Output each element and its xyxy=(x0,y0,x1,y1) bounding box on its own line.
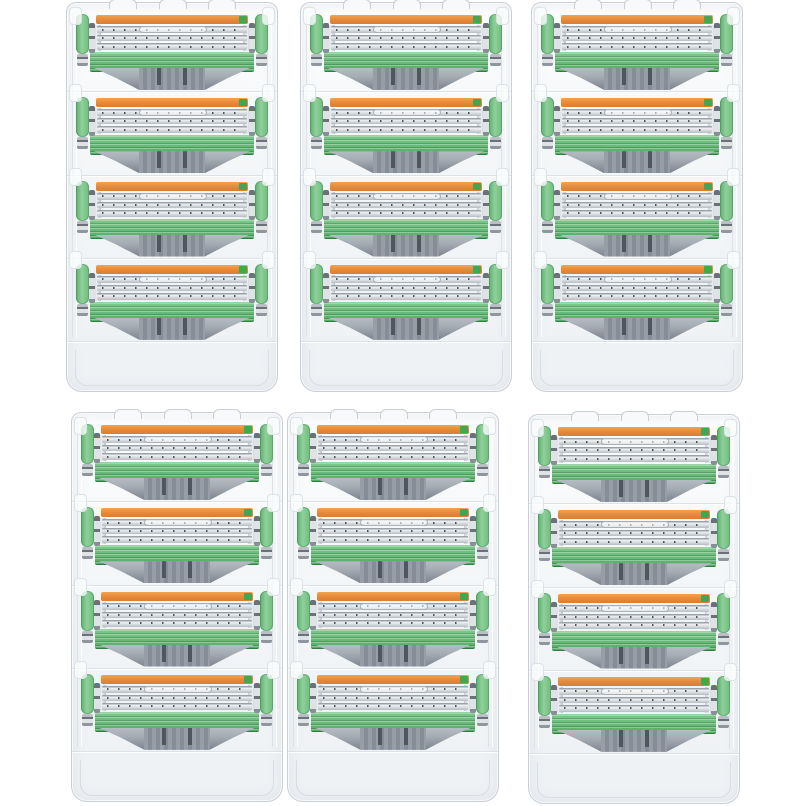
lubricating-strip xyxy=(317,508,469,517)
tray-wall-nub-right xyxy=(483,417,496,435)
lubricating-strip-end-cap xyxy=(701,678,709,685)
connector-slot xyxy=(188,728,192,745)
cartridge-back xyxy=(556,730,712,752)
cartridge-side-tab-left xyxy=(76,97,89,137)
connector-slot xyxy=(183,68,187,85)
cartridge-pivot-pin-left xyxy=(554,106,560,136)
tray-wall-nub-left xyxy=(534,84,547,102)
cartridge-back xyxy=(556,480,712,502)
blade-row xyxy=(97,118,247,124)
lubricating-strip xyxy=(561,15,713,24)
razor-pack-bottom-right xyxy=(528,414,740,804)
tray-wall-nub-left xyxy=(74,661,87,679)
lubricating-strip xyxy=(561,265,713,274)
connector-slot xyxy=(162,728,166,745)
cartridge-connector-ribs xyxy=(139,68,205,90)
lubricating-strip xyxy=(96,265,248,274)
lubricating-strip-end-cap xyxy=(473,183,481,190)
connector-slot xyxy=(404,561,408,578)
tray-wall-nub-left xyxy=(290,661,303,679)
blade-guard-dots xyxy=(567,212,707,214)
tray-empty-compartment xyxy=(67,341,277,391)
razor-cartridge xyxy=(72,586,282,668)
tray-top-bump xyxy=(393,0,421,9)
blade-row xyxy=(318,703,468,710)
tray-top-bump xyxy=(330,409,358,419)
blade-row xyxy=(102,612,252,618)
lubricating-strip xyxy=(558,510,710,519)
blade-guard-dots xyxy=(102,287,242,289)
blade-row xyxy=(562,202,712,208)
blade-comfort-guard xyxy=(601,521,669,528)
blade-comfort-guard xyxy=(144,686,212,693)
blade-row xyxy=(559,521,709,528)
lubricating-strip xyxy=(101,675,253,684)
blade-row xyxy=(318,612,468,618)
cartridge-back xyxy=(559,318,715,340)
tray-top-bump xyxy=(571,411,599,421)
cartridge-side-tab-right xyxy=(489,181,502,221)
tray-cartridge-slots xyxy=(532,9,742,341)
tray-wall-nub-left xyxy=(531,580,544,598)
lubricating-strip-end-cap xyxy=(473,16,481,23)
tray-cell xyxy=(288,501,498,584)
blade-guard-dots xyxy=(336,46,476,48)
lubricating-strip xyxy=(330,15,482,24)
lubricating-strip-end-cap xyxy=(701,428,709,435)
connector-slot xyxy=(157,68,161,85)
blade-guard-dots xyxy=(323,447,463,449)
connector-slot xyxy=(391,68,395,85)
tray-empty-compartment xyxy=(288,751,498,801)
tray-wall-nub-left xyxy=(69,84,82,102)
tray-top-bump xyxy=(109,0,137,9)
cartridge-side-tab-left xyxy=(538,593,551,633)
cartridge-back xyxy=(556,563,712,585)
blade-row xyxy=(97,202,247,208)
blade-row xyxy=(102,603,252,610)
blade-guard-dots xyxy=(102,37,242,39)
tray-wall-nub-left xyxy=(69,251,82,269)
cartridge-connector-ribs xyxy=(373,68,439,90)
lubricating-strip-end-cap xyxy=(460,676,468,683)
cartridge-side-tab-left xyxy=(81,674,94,714)
tray-wall-nub-right xyxy=(724,419,737,437)
tray-wall-nub-right xyxy=(267,494,280,512)
lubricating-strip-end-cap xyxy=(244,426,252,433)
cartridge-back xyxy=(328,235,484,257)
lubricating-strip xyxy=(96,182,248,191)
tray-top-bump xyxy=(670,411,698,421)
connector-slot xyxy=(417,318,421,335)
tray-cell xyxy=(301,258,511,341)
blade-guard-dots xyxy=(107,539,247,541)
razor-cartridge xyxy=(288,586,498,668)
blade-row xyxy=(559,697,709,703)
cartridge-back xyxy=(328,151,484,173)
blade-comfort-guard xyxy=(604,109,672,116)
blade-row xyxy=(102,453,252,460)
blade-row xyxy=(559,530,709,536)
connector-slot xyxy=(648,235,652,252)
lubricating-strip-end-cap xyxy=(704,266,712,273)
tray-wall-nub-left xyxy=(534,7,547,25)
connector-slot xyxy=(162,478,166,495)
cartridge-side-tab-left xyxy=(310,97,323,137)
tray-cartridge-slots xyxy=(72,419,282,751)
plastic-tray xyxy=(300,2,512,392)
blade-row xyxy=(102,686,252,693)
blade-comfort-guard xyxy=(373,26,441,33)
cartridge-connector-ribs xyxy=(604,318,670,340)
connector-slot xyxy=(378,478,382,495)
lubricating-strip xyxy=(101,592,253,601)
cartridge-side-tab-left xyxy=(538,509,551,549)
blade-row xyxy=(318,620,468,627)
connector-slot xyxy=(648,151,652,168)
lubricating-strip-end-cap xyxy=(239,99,247,106)
cartridge-side-tab-right xyxy=(489,97,502,137)
blade-guard-dots xyxy=(323,705,463,707)
blade-comfort-guard xyxy=(360,519,428,526)
tray-cell xyxy=(72,419,282,501)
blade-comfort-guard xyxy=(601,605,669,612)
blade-row xyxy=(331,43,481,50)
blade-row xyxy=(331,35,481,41)
cartridge-side-tab-right xyxy=(476,507,489,547)
lubricating-strip xyxy=(330,265,482,274)
blade-guard-dots xyxy=(564,449,704,451)
tray-floor-outline xyxy=(75,350,269,386)
blade-guard-dots xyxy=(567,204,707,206)
tray-top-bump xyxy=(213,409,241,419)
blade-row xyxy=(318,695,468,701)
tray-wall-nub-left xyxy=(303,168,316,186)
blade-guard-dots xyxy=(564,532,704,534)
blade-row xyxy=(562,109,712,116)
cartridge-pivot-pin-left xyxy=(551,435,557,465)
lubricating-strip xyxy=(317,675,469,684)
cartridge-connector-ribs xyxy=(601,480,667,502)
cartridge-pivot-pin-left xyxy=(94,433,100,463)
tray-wall-nub-right xyxy=(483,578,496,596)
tray-wall-nub-right xyxy=(727,7,740,25)
blade-row xyxy=(331,26,481,33)
cartridge-back xyxy=(315,728,471,750)
tray-top-bump xyxy=(621,411,649,421)
tray-cell xyxy=(301,175,511,258)
connector-slot xyxy=(645,563,649,580)
blade-row xyxy=(97,126,247,133)
cartridge-back xyxy=(315,478,471,500)
cartridge-connector-ribs xyxy=(144,561,210,583)
blade-row xyxy=(97,210,247,217)
blade-row xyxy=(331,202,481,208)
lubricating-strip-end-cap xyxy=(244,676,252,683)
razor-cartridge xyxy=(532,259,742,341)
razor-cartridge xyxy=(532,9,742,91)
lubricating-strip-end-cap xyxy=(460,509,468,516)
tray-wall-nub-left xyxy=(74,578,87,596)
blade-row xyxy=(559,538,709,545)
connector-slot xyxy=(648,68,652,85)
lubricating-strip xyxy=(96,98,248,107)
cartridge-pivot-pin-left xyxy=(94,600,100,630)
blade-guard-dots xyxy=(336,37,476,39)
cartridge-connector-ribs xyxy=(601,730,667,752)
connector-slot xyxy=(645,647,649,664)
connector-slot xyxy=(622,318,626,335)
razor-cartridge xyxy=(532,92,742,174)
plastic-tray xyxy=(287,412,499,802)
connector-slot xyxy=(188,645,192,662)
tray-wall-nub-right xyxy=(724,663,737,681)
tray-wall-nub-right xyxy=(727,168,740,186)
cartridge-back xyxy=(559,151,715,173)
cartridge-back xyxy=(315,561,471,583)
plastic-tray xyxy=(71,412,283,802)
blade-row xyxy=(318,436,468,443)
connector-slot xyxy=(162,561,166,578)
cartridge-back xyxy=(94,68,250,90)
cartridge-side-tab-left xyxy=(297,507,310,547)
blade-row xyxy=(318,528,468,534)
lubricating-strip xyxy=(561,98,713,107)
tray-wall-nub-right xyxy=(267,661,280,679)
cartridge-connector-ribs xyxy=(144,645,210,667)
blade-comfort-guard xyxy=(373,109,441,116)
connector-slot xyxy=(391,318,395,335)
blade-comfort-guard xyxy=(144,603,212,610)
blade-row xyxy=(318,453,468,460)
cartridge-pivot-pin-left xyxy=(310,433,316,463)
cartridge-side-tab-left xyxy=(297,591,310,631)
lubricating-strip xyxy=(96,15,248,24)
blade-row xyxy=(97,193,247,200)
plastic-tray xyxy=(528,414,740,804)
tray-cell xyxy=(67,9,277,91)
blade-guard-dots xyxy=(564,699,704,701)
connector-slot xyxy=(183,235,187,252)
blade-guard-dots xyxy=(336,287,476,289)
connector-slot xyxy=(417,68,421,85)
blade-row xyxy=(559,688,709,695)
tray-cartridge-slots xyxy=(529,421,739,753)
razor-pack-top-left xyxy=(66,2,278,392)
connector-slot xyxy=(391,151,395,168)
cartridge-connector-ribs xyxy=(601,563,667,585)
cartridge-pivot-pin-left xyxy=(323,190,329,220)
blade-comfort-guard xyxy=(601,688,669,695)
blade-guard-dots xyxy=(102,120,242,122)
blade-comfort-guard xyxy=(373,193,441,200)
cartridge-pivot-pin-left xyxy=(89,190,95,220)
cartridge-side-tab-left xyxy=(297,674,310,714)
connector-slot xyxy=(619,730,623,747)
connector-slot xyxy=(417,151,421,168)
tray-wall-nub-left xyxy=(531,496,544,514)
blade-row xyxy=(562,276,712,283)
lubricating-strip-end-cap xyxy=(460,426,468,433)
tray-cell xyxy=(288,668,498,751)
plastic-tray xyxy=(66,2,278,392)
tray-wall-nub-right xyxy=(496,7,509,25)
blade-row xyxy=(318,603,468,610)
blade-guard-dots xyxy=(336,120,476,122)
connector-slot xyxy=(391,235,395,252)
cartridge-side-tab-right xyxy=(720,97,733,137)
connector-slot xyxy=(648,318,652,335)
connector-slot xyxy=(157,318,161,335)
razor-cartridge xyxy=(301,259,511,341)
lubricating-strip xyxy=(561,182,713,191)
blade-guard-dots xyxy=(323,697,463,699)
connector-slot xyxy=(619,563,623,580)
tray-floor-outline xyxy=(537,762,731,798)
tray-empty-compartment xyxy=(532,341,742,391)
tray-wall-nub-left xyxy=(290,578,303,596)
tray-cell xyxy=(532,9,742,91)
blade-row xyxy=(562,210,712,217)
blade-guard-dots xyxy=(336,129,476,131)
tray-wall-nub-right xyxy=(262,84,275,102)
tray-wall-nub-right xyxy=(262,7,275,25)
blade-guard-dots xyxy=(336,212,476,214)
cartridge-side-tab-right xyxy=(260,674,273,714)
tray-wall-nub-left xyxy=(534,168,547,186)
cartridge-side-tab-left xyxy=(541,97,554,137)
cartridge-pivot-pin-left xyxy=(323,273,329,303)
tray-wall-nub-right xyxy=(727,84,740,102)
tray-wall-nub-left xyxy=(69,168,82,186)
razor-cartridge xyxy=(288,669,498,751)
blade-row xyxy=(331,109,481,116)
blade-row xyxy=(559,605,709,612)
blade-guard-dots xyxy=(567,37,707,39)
cartridge-connector-ribs xyxy=(139,151,205,173)
blade-guard-dots xyxy=(102,129,242,131)
tray-wall-nub-left xyxy=(303,251,316,269)
lubricating-strip xyxy=(558,594,710,603)
tray-top-bump xyxy=(574,0,602,9)
razor-cartridge xyxy=(532,176,742,258)
cartridge-side-tab-right xyxy=(255,264,268,304)
cartridge-pivot-pin-left xyxy=(554,23,560,53)
connector-slot xyxy=(404,728,408,745)
tray-wall-nub-right xyxy=(483,494,496,512)
cartridge-connector-ribs xyxy=(604,151,670,173)
connector-slot xyxy=(622,68,626,85)
lubricating-strip xyxy=(101,425,253,434)
tray-wall-nub-right xyxy=(496,168,509,186)
blade-guard-dots xyxy=(564,624,704,626)
razor-cartridge xyxy=(72,419,282,501)
blade-row xyxy=(318,536,468,543)
blade-row xyxy=(559,447,709,453)
tray-cell xyxy=(288,419,498,501)
tray-floor-outline xyxy=(296,760,490,796)
blade-comfort-guard xyxy=(360,603,428,610)
tray-cell xyxy=(288,585,498,668)
cartridge-connector-ribs xyxy=(604,68,670,90)
tray-top-bump xyxy=(159,0,187,9)
lubricating-strip-end-cap xyxy=(701,595,709,602)
blade-guard-dots xyxy=(567,129,707,131)
blade-guard-dots xyxy=(102,212,242,214)
lubricating-strip-end-cap xyxy=(473,99,481,106)
blade-guard-dots xyxy=(102,204,242,206)
blade-row xyxy=(331,293,481,300)
connector-slot xyxy=(378,561,382,578)
connector-slot xyxy=(622,235,626,252)
blade-comfort-guard xyxy=(604,26,672,33)
blade-guard-dots xyxy=(567,46,707,48)
tray-cell xyxy=(67,258,277,341)
tray-cartridge-slots xyxy=(288,419,498,751)
cartridge-back xyxy=(99,645,255,667)
connector-slot xyxy=(645,730,649,747)
blade-guard-dots xyxy=(102,46,242,48)
blade-guard-dots xyxy=(567,120,707,122)
product-photo: Six clear plastic refill trays arranged … xyxy=(0,0,806,806)
blade-row xyxy=(331,126,481,133)
connector-slot xyxy=(162,645,166,662)
tray-top-bump xyxy=(164,409,192,419)
lubricating-strip-end-cap xyxy=(704,183,712,190)
cartridge-connector-ribs xyxy=(360,728,426,750)
lubricating-strip-end-cap xyxy=(244,509,252,516)
cartridge-connector-ribs xyxy=(144,478,210,500)
razor-cartridge xyxy=(529,588,739,670)
tray-cell xyxy=(532,258,742,341)
cartridge-back xyxy=(315,645,471,667)
blade-guard-dots xyxy=(564,458,704,460)
cartridge-side-tab-right xyxy=(717,593,730,633)
cartridge-back xyxy=(328,318,484,340)
tray-wall-nub-right xyxy=(496,251,509,269)
blade-row xyxy=(102,695,252,701)
tray-wall-nub-right xyxy=(267,578,280,596)
cartridge-pivot-pin-left xyxy=(94,683,100,713)
razor-cartridge xyxy=(301,9,511,91)
blade-guard-dots xyxy=(323,539,463,541)
razor-cartridge xyxy=(67,259,277,341)
tray-cell xyxy=(67,91,277,174)
blade-row xyxy=(102,620,252,627)
connector-slot xyxy=(417,235,421,252)
lubricating-strip-end-cap xyxy=(239,266,247,273)
blade-row xyxy=(331,193,481,200)
tray-cell xyxy=(301,91,511,174)
blade-guard-dots xyxy=(107,705,247,707)
lubricating-strip-end-cap xyxy=(704,16,712,23)
blade-row xyxy=(562,285,712,291)
tray-wall-nub-left xyxy=(69,7,82,25)
tray-top-bump xyxy=(673,0,701,9)
tray-wall-nub-left xyxy=(534,251,547,269)
tray-wall-nub-left xyxy=(531,663,544,681)
tray-cell xyxy=(67,175,277,258)
connector-slot xyxy=(622,151,626,168)
cartridge-pivot-pin-left xyxy=(323,23,329,53)
blade-row xyxy=(562,193,712,200)
blade-row xyxy=(318,445,468,451)
blade-comfort-guard xyxy=(604,193,672,200)
blade-row xyxy=(559,622,709,629)
blade-comfort-guard xyxy=(601,438,669,445)
tray-cell xyxy=(532,175,742,258)
tray-top-bump xyxy=(114,409,142,419)
